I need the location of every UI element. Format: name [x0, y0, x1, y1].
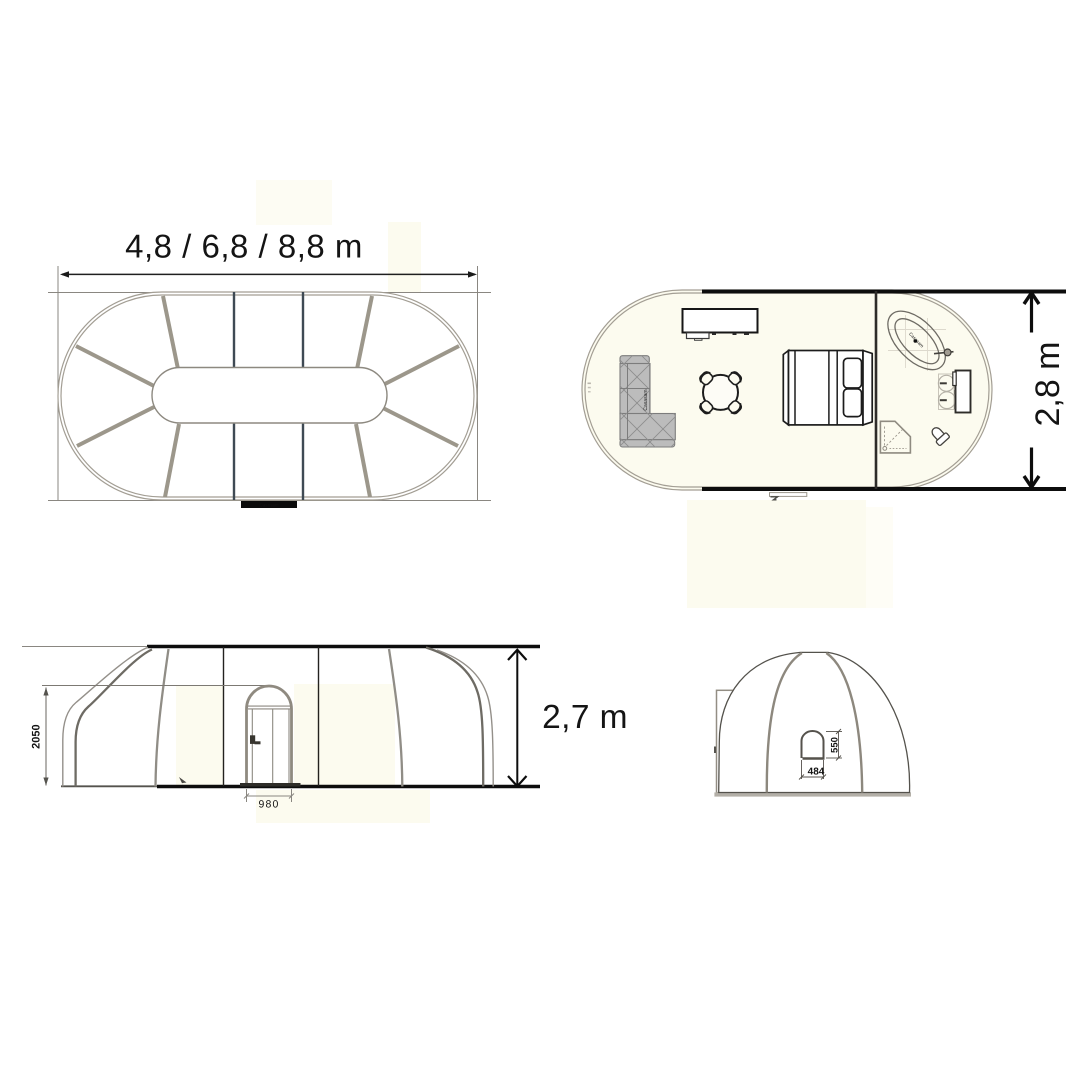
- svg-text:4,8 / 6,8 / 8,8 m: 4,8 / 6,8 / 8,8 m: [125, 228, 363, 265]
- svg-text:980: 980: [258, 799, 279, 811]
- svg-text:Casasam: Casasam: [643, 389, 649, 410]
- svg-text:2050: 2050: [31, 724, 43, 748]
- svg-text:2,7 m: 2,7 m: [542, 699, 628, 736]
- svg-text:550: 550: [830, 737, 841, 753]
- svg-text:Casasam: Casasam: [259, 503, 278, 508]
- svg-text:2,8 m: 2,8 m: [1029, 341, 1067, 426]
- svg-text:484: 484: [808, 767, 825, 778]
